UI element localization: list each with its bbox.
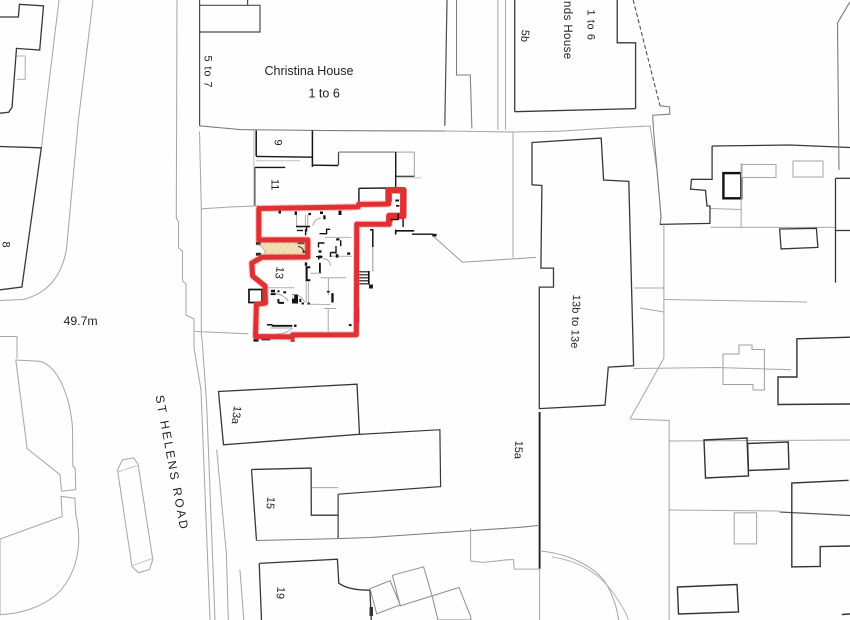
svg-text:13a: 13a — [229, 405, 243, 426]
svg-text:9: 9 — [272, 140, 284, 146]
svg-text:13: 13 — [272, 266, 285, 280]
svg-text:11: 11 — [269, 179, 281, 190]
svg-text:49.7m: 49.7m — [64, 314, 98, 328]
svg-text:8: 8 — [0, 242, 12, 248]
svg-text:13b to 13e: 13b to 13e — [568, 294, 582, 348]
svg-text:15: 15 — [263, 496, 276, 509]
svg-text:1 to 6: 1 to 6 — [585, 10, 597, 41]
svg-text:Christina House: Christina House — [265, 64, 354, 78]
svg-text:1 to 6: 1 to 6 — [309, 87, 340, 101]
svg-text:nds House: nds House — [561, 1, 573, 60]
svg-text:19: 19 — [273, 586, 286, 599]
svg-text:15a: 15a — [511, 440, 524, 460]
svg-text:5b: 5b — [518, 29, 531, 42]
svg-text:5 to 7: 5 to 7 — [202, 56, 214, 89]
